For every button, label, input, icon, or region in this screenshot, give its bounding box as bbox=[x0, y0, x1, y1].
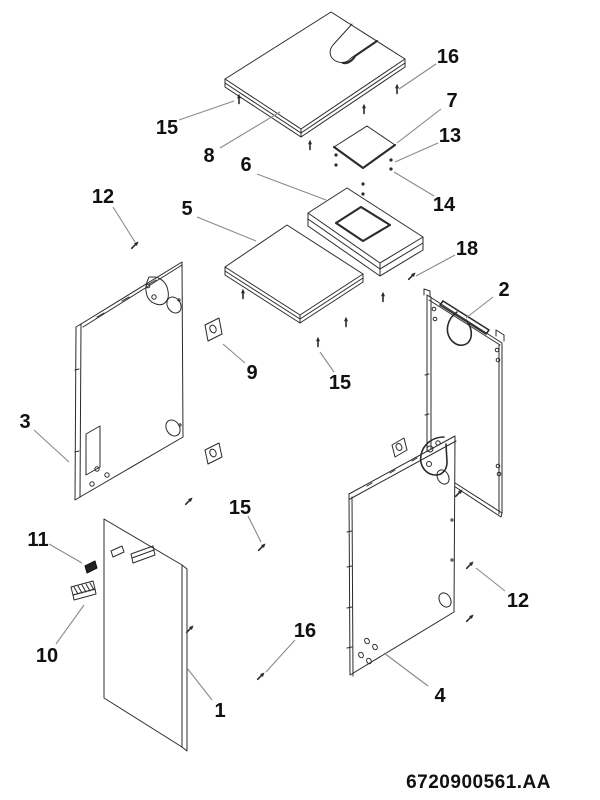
callout-7: 7 bbox=[446, 90, 457, 112]
screw-mark bbox=[465, 613, 475, 623]
leader-line-13 bbox=[395, 143, 438, 162]
screw-dot bbox=[334, 163, 337, 166]
leader-line-3 bbox=[34, 430, 69, 462]
screw-dot bbox=[389, 167, 392, 170]
part-grommet-plate bbox=[205, 318, 407, 464]
callout-8: 8 bbox=[203, 145, 214, 167]
leader-line-9 bbox=[223, 344, 245, 363]
leader-line-7 bbox=[397, 109, 441, 143]
part-top-cover-panel bbox=[225, 12, 405, 137]
leader-line-11 bbox=[49, 544, 82, 563]
leader-line-8 bbox=[220, 112, 280, 148]
part-small-top-plate bbox=[334, 126, 395, 168]
leader-line-12 bbox=[113, 207, 135, 242]
screw-dot bbox=[334, 153, 337, 156]
callout-16: 16 bbox=[437, 46, 459, 68]
screw-mark bbox=[308, 140, 312, 150]
callout-12: 12 bbox=[507, 590, 529, 612]
document-number: 6720900561.AA bbox=[406, 772, 551, 793]
screw-dot bbox=[361, 192, 364, 195]
diagram-page: 167131418212158659151516131110412 672090… bbox=[0, 0, 600, 800]
leader-line-6 bbox=[257, 174, 326, 200]
part-rating-plate bbox=[71, 581, 96, 600]
leader-line-15 bbox=[320, 352, 334, 372]
screw-mark bbox=[407, 271, 417, 281]
screw-mark bbox=[395, 84, 399, 94]
leader-line-15 bbox=[248, 516, 261, 542]
screw-mark bbox=[257, 542, 267, 552]
callout-13: 13 bbox=[439, 125, 461, 147]
leader-line-10 bbox=[56, 605, 84, 644]
part-front-door bbox=[104, 519, 187, 751]
callout-14: 14 bbox=[433, 194, 456, 216]
callout-15: 15 bbox=[156, 117, 178, 139]
screw-dot bbox=[361, 182, 364, 185]
screw-mark bbox=[256, 671, 266, 681]
part-left-side-panel bbox=[75, 262, 184, 500]
callout-4: 4 bbox=[434, 685, 446, 707]
leader-line-12 bbox=[476, 568, 505, 591]
callout-15: 15 bbox=[329, 372, 351, 394]
callout-11: 11 bbox=[27, 529, 48, 551]
screw-mark bbox=[362, 104, 366, 114]
exploded-parts-diagram: 167131418212158659151516131110412 672090… bbox=[0, 0, 600, 800]
callout-18: 18 bbox=[456, 238, 478, 260]
part-middle-panel bbox=[225, 225, 363, 323]
leader-line-14 bbox=[394, 172, 434, 196]
leader-line-18 bbox=[416, 255, 455, 276]
callout-2: 2 bbox=[498, 279, 509, 301]
screw-mark bbox=[344, 317, 348, 327]
leader-line-1 bbox=[187, 668, 212, 700]
callout-15: 15 bbox=[229, 497, 251, 519]
callout-12: 12 bbox=[92, 186, 114, 208]
part-clip bbox=[85, 561, 97, 573]
screw-mark bbox=[381, 292, 385, 302]
leader-line-4 bbox=[384, 653, 428, 686]
leader-line-5 bbox=[197, 217, 256, 241]
callout-5: 5 bbox=[181, 198, 192, 220]
leader-line-16 bbox=[266, 640, 295, 672]
leader-line-2 bbox=[466, 297, 493, 318]
callout-10: 10 bbox=[36, 645, 58, 667]
screw-mark bbox=[241, 289, 245, 299]
part-right-side-panel bbox=[347, 436, 456, 676]
screw-mark bbox=[465, 560, 475, 570]
screw-mark bbox=[184, 496, 194, 506]
callout-9: 9 bbox=[246, 362, 257, 384]
leader-line-15 bbox=[179, 101, 234, 120]
screw-dot bbox=[389, 158, 392, 161]
callout-1: 1 bbox=[214, 700, 225, 722]
callout-3: 3 bbox=[19, 411, 30, 433]
callout-16: 16 bbox=[294, 620, 316, 642]
callout-6: 6 bbox=[240, 154, 251, 176]
screw-mark bbox=[316, 337, 320, 347]
